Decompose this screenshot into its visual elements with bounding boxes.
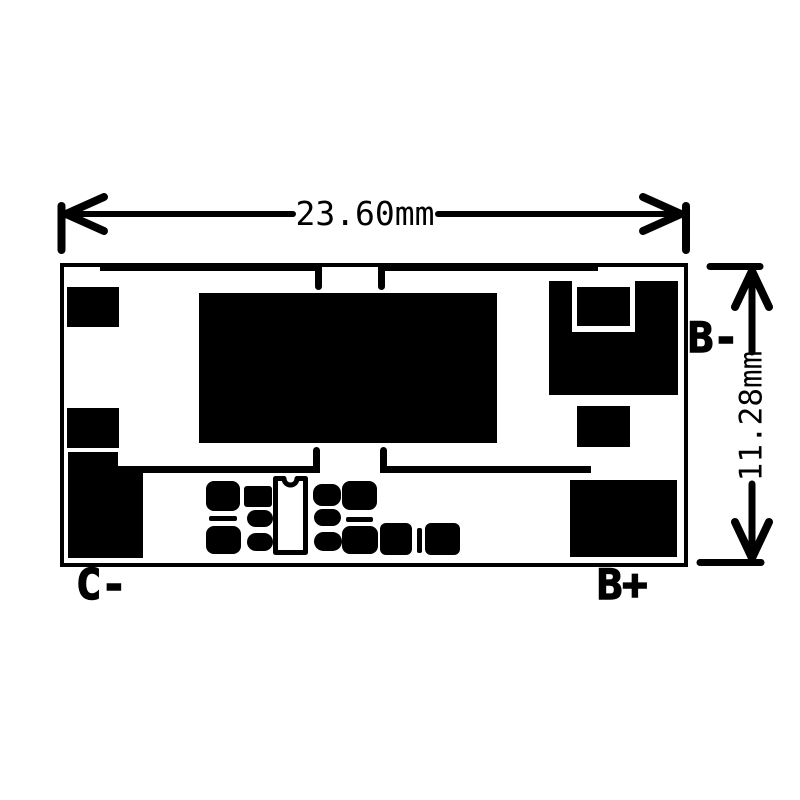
arrowhead-left-icon [66, 197, 104, 231]
top-trace-tick-right [378, 264, 385, 290]
ic-pad-right-bottom [342, 526, 378, 554]
terminal-label-b-plus: B+ [597, 564, 648, 606]
mid-trace-left [118, 466, 320, 473]
pad-b-minus-inner [577, 287, 630, 326]
arrowhead-down-icon [735, 522, 769, 558]
pad-right-small [577, 406, 630, 447]
mid-trace-left-hook [313, 447, 320, 473]
pad-c-minus-lower [68, 467, 143, 558]
ic-pad-left-bottom [206, 526, 241, 554]
component-pad-b [425, 523, 460, 555]
width-dimension-label: 23.60mm [265, 197, 465, 230]
ic-pad-right-top [342, 481, 377, 510]
mid-trace-right [380, 466, 591, 473]
terminal-label-c-minus: C- [76, 564, 127, 606]
ic-pin-l3 [247, 533, 273, 551]
pad-top-left [67, 287, 119, 327]
height-dimension-label: 11.28mm [737, 351, 768, 482]
diagram-canvas: 23.60mm 11.28mm B- C- B+ [0, 0, 800, 800]
pad-mid-left [67, 408, 119, 448]
pad-b-minus [549, 281, 678, 395]
pad-central-large [199, 293, 497, 443]
top-trace-tick-left [315, 264, 322, 290]
ic-pin-r3 [314, 532, 342, 551]
arrowhead-right-icon [643, 197, 681, 231]
component-pad-a [380, 523, 412, 555]
component-bar [417, 528, 422, 553]
mid-trace-right-hook [380, 447, 387, 473]
ic-pin-r1 [313, 484, 341, 506]
ic-bar-left [209, 516, 237, 521]
top-trace-left [100, 263, 320, 271]
pad-b-plus [570, 480, 677, 557]
terminal-label-b-minus: B- [688, 317, 739, 359]
ic-pin-l1 [244, 486, 272, 507]
ic-pad-left-top [206, 481, 240, 511]
ic-bar-right [346, 517, 373, 522]
top-trace-right [380, 263, 598, 271]
ic-pin-l2 [247, 510, 273, 527]
arrowhead-up-icon [735, 271, 769, 307]
ic-pin-r2 [314, 509, 341, 526]
